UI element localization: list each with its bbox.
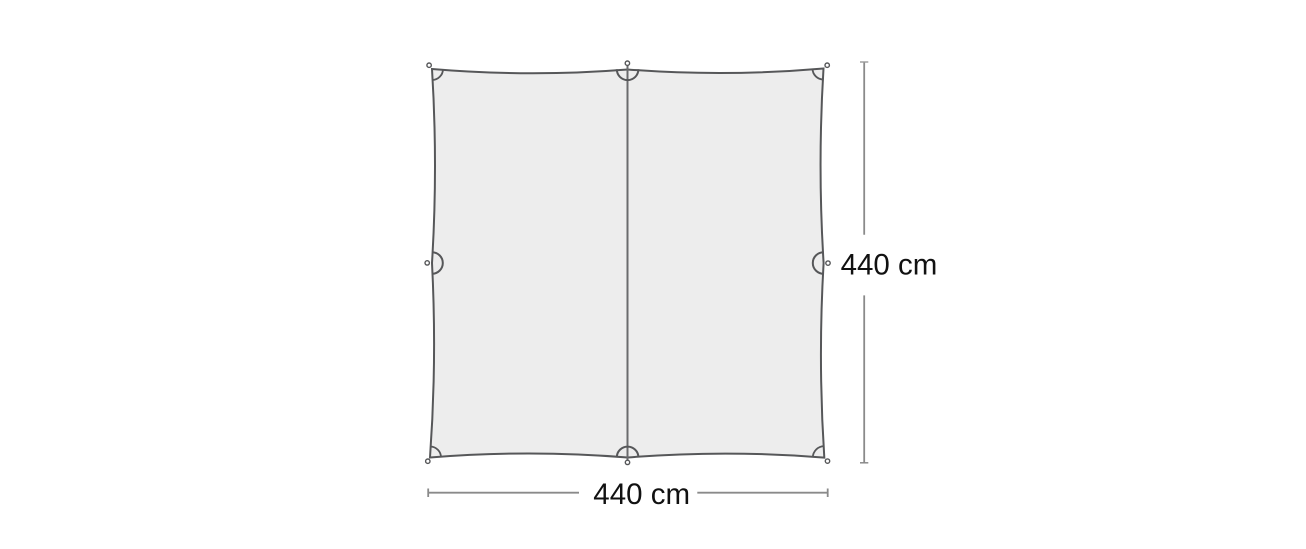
- svg-text:440 cm: 440 cm: [841, 249, 938, 282]
- svg-text:440 cm: 440 cm: [593, 478, 690, 511]
